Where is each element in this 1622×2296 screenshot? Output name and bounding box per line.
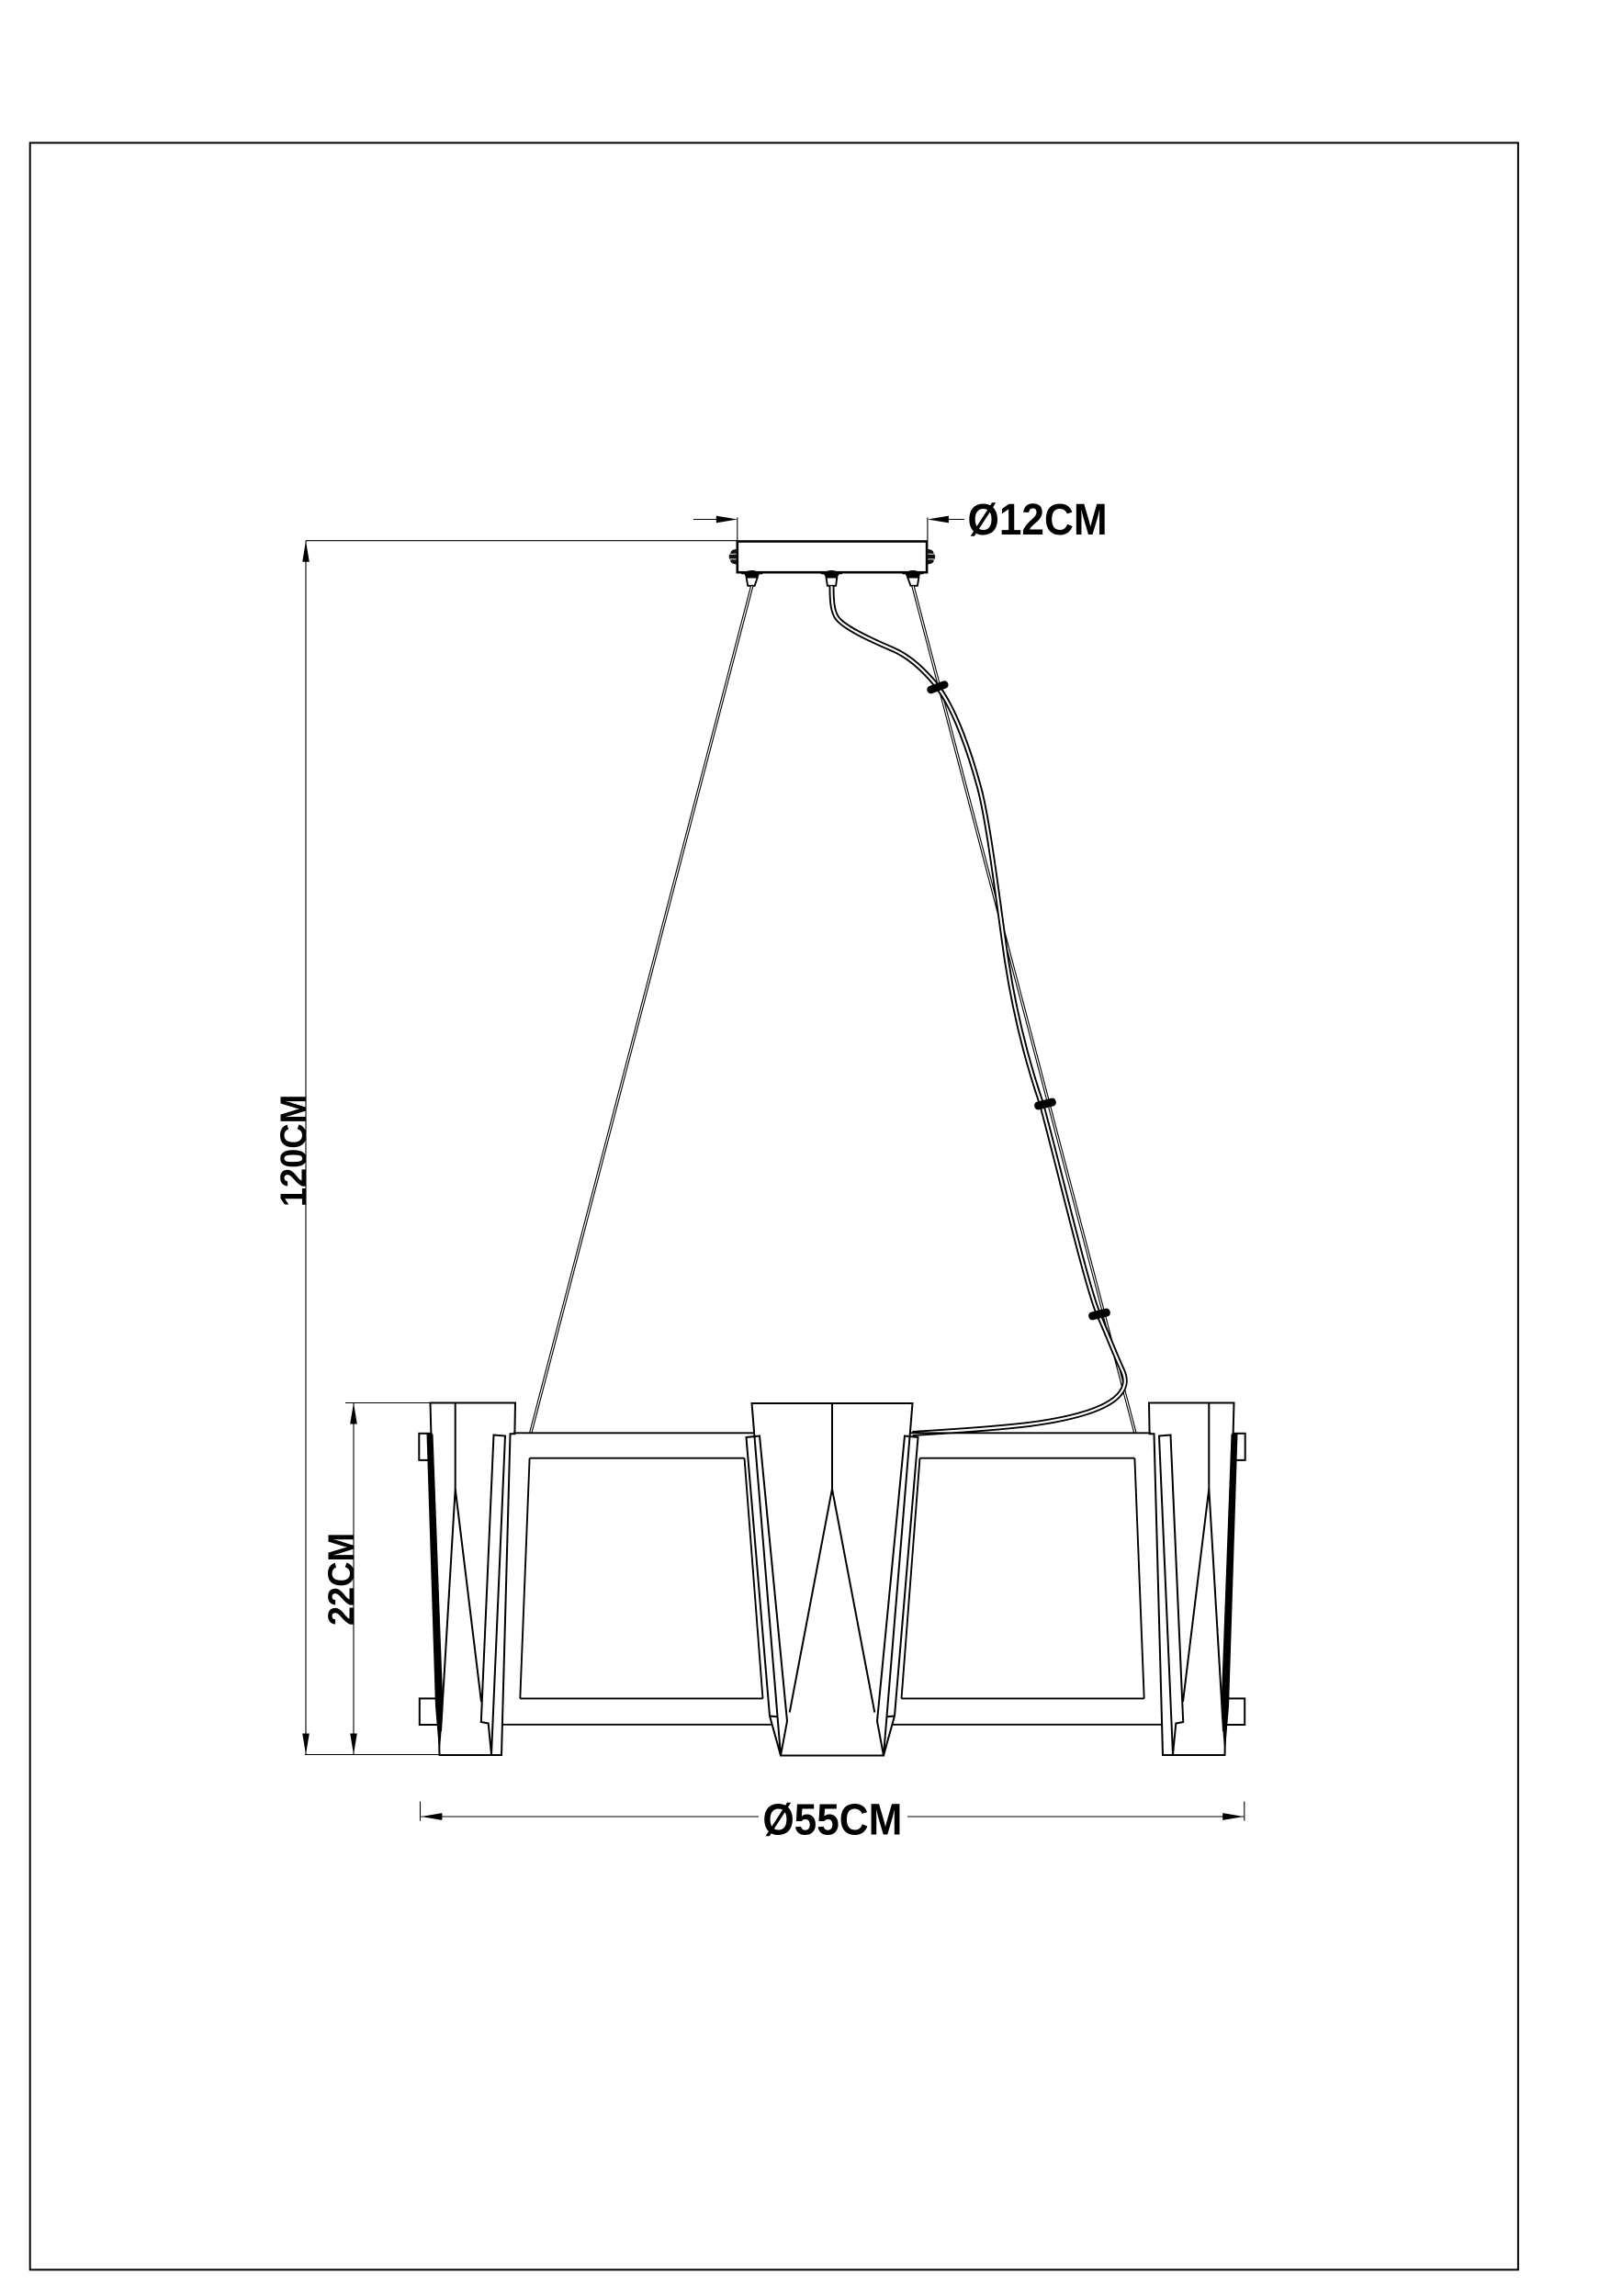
svg-text:120CM: 120CM xyxy=(274,1095,314,1207)
svg-text:Ø12CM: Ø12CM xyxy=(968,494,1108,544)
svg-text:22CM: 22CM xyxy=(321,1533,362,1626)
svg-text:Ø55CM: Ø55CM xyxy=(762,1795,902,1844)
